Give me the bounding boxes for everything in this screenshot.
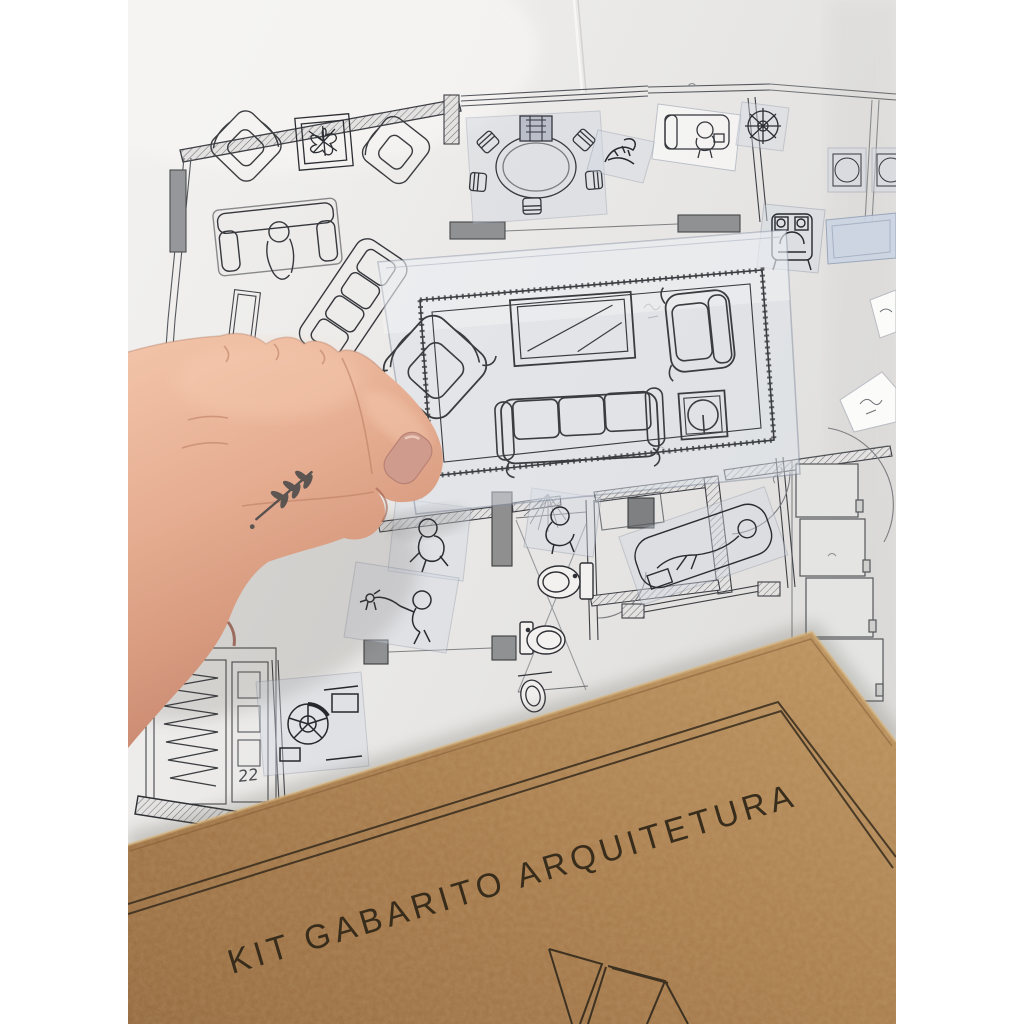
furniture-sticker-blue-rect: [826, 213, 896, 264]
furniture-sticker-round-plant: [736, 102, 789, 151]
photo-area: 22: [128, 0, 896, 1024]
furniture-sticker-side-table: [828, 148, 866, 192]
white-margin-left: [0, 0, 128, 1024]
toilet-icon: [538, 563, 593, 599]
white-margin-right: [896, 0, 1024, 1024]
toilet-icon: [520, 622, 565, 654]
dimension-note: 22: [238, 765, 259, 786]
furniture-sticker-sofa-person: [652, 104, 741, 171]
furniture-sticker-dining: [466, 111, 607, 224]
furniture-sticker-side-table: [872, 148, 896, 192]
sofa-person-icon: [212, 198, 343, 286]
photo-drawing: 22: [128, 0, 896, 1024]
product-photo-canvas: 22: [0, 0, 1024, 1024]
